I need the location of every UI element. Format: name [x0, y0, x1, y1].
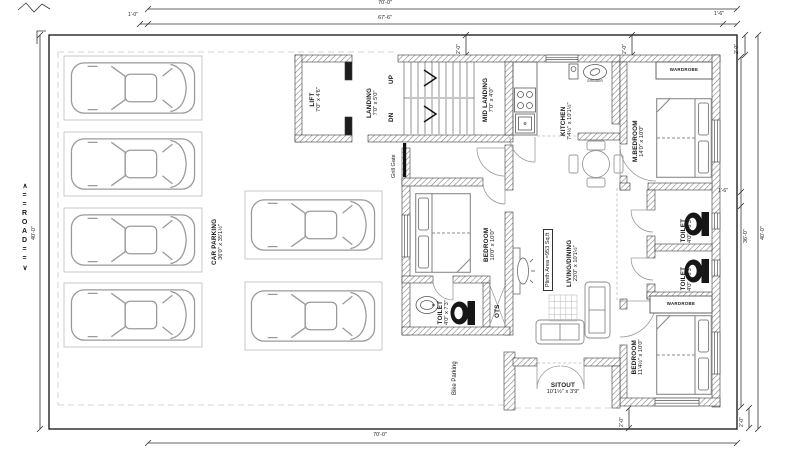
dim-2ft: 2'-0" — [620, 417, 626, 427]
dim-2ft: 2'-0" — [457, 44, 463, 54]
room-label-bedroom-right: BEDROOM 11'4½" x 10'0" — [631, 339, 645, 375]
wardrobe-label: WARDROBE — [651, 301, 711, 306]
dimension-lines — [18, 3, 761, 446]
room-label-mid-landing: MID LANDING 7'0" x 4'0" — [482, 78, 496, 122]
room-label-lift: LIFT 7'0" x 4'6" — [309, 87, 323, 112]
tv-unit-icon — [513, 248, 535, 294]
car-icon — [71, 215, 194, 265]
dim-left-height: 40'-0" — [31, 226, 37, 240]
dim-top-inner: 67'-6" — [355, 15, 415, 21]
car-icon — [71, 290, 194, 340]
dim-2ft: 2'-0" — [623, 44, 629, 54]
sink-icon — [516, 114, 535, 133]
sofa-icon — [536, 282, 610, 344]
ots-label: OTS — [494, 304, 501, 318]
rug-icon — [549, 295, 577, 321]
room-label-toilet-1: TOILET 4'0" x 6'3" — [680, 218, 694, 243]
dim-2ft: 2'-0" — [740, 417, 746, 427]
dim-offset-right-mid: 1'-6" — [718, 189, 728, 195]
staircase — [404, 62, 474, 135]
stair-up-label: UP — [388, 75, 395, 84]
grinder-label: GRINDER — [583, 80, 607, 84]
room-label-car-parking: CAR PARKING 36'0" x 35'1½" — [211, 219, 225, 265]
washbasin-icon — [416, 297, 438, 314]
room-label-toilet-2: TOILET 4'0" x 6'3" — [680, 266, 694, 291]
stove-icon — [515, 88, 536, 112]
dim-2ft: 2'-0" — [735, 44, 741, 54]
car-icon — [71, 139, 194, 189]
bed-icon — [657, 316, 712, 395]
grill-gate-icon — [403, 143, 406, 177]
bed-icon — [657, 99, 712, 178]
road-label: ∧==ROAD==∨ — [20, 133, 28, 323]
stair-dn-label: DN — [388, 113, 395, 123]
room-label-toilet-left: TOILET 4'0" x 7'3" — [437, 300, 451, 325]
dim-bottom-total: 70'-0" — [350, 432, 410, 438]
dim-offset-left: 1'-0" — [128, 13, 138, 19]
room-label-bedroom-left: BEDROOM 10'0" x 10'0" — [483, 228, 497, 262]
car-icon — [251, 200, 374, 250]
car-icon — [71, 63, 194, 113]
room-label-kitchen: KITCHEN 7'4½" x 10'1½" — [560, 102, 574, 140]
grill-gate-label: Grill Gate — [391, 154, 397, 178]
wc-icon — [451, 301, 476, 325]
room-label-landing: LANDING 7'0" x 5'0" — [366, 88, 380, 118]
bike-parking-label: Bike Parking — [452, 361, 459, 395]
room-label-m-bedroom: M.BEDROOM 14'0" x 10'0" — [632, 120, 646, 162]
bed-icon — [416, 194, 471, 273]
floor-plan-canvas: ∧==ROAD==∨ 70'-0" 67'-6" 1'-0" 1'-6" 1'-… — [0, 0, 800, 450]
dim-top-total: 70'-0" — [355, 0, 415, 6]
room-label-sitout: SITOUT 10'1½" x 3'9" — [526, 382, 600, 396]
room-label-living-dining: LIVING/DINING 23'0" x 10'1½" — [566, 240, 580, 287]
car-parking-area — [64, 56, 382, 350]
dim-right-inner-height: 36'-0" — [743, 229, 749, 243]
dining-table-icon — [569, 141, 623, 187]
plinth-area-label: Plinth Area =953 Sq.ft — [543, 229, 553, 291]
car-icon — [251, 291, 374, 341]
wardrobe-label: WARDROBE — [658, 67, 710, 72]
dim-offset-right: 1'-6" — [714, 12, 724, 18]
dim-right-height: 40'-0" — [760, 226, 766, 240]
parking-stalls — [64, 56, 382, 350]
counter-icon — [513, 62, 537, 135]
grinder-icon — [569, 64, 607, 80]
